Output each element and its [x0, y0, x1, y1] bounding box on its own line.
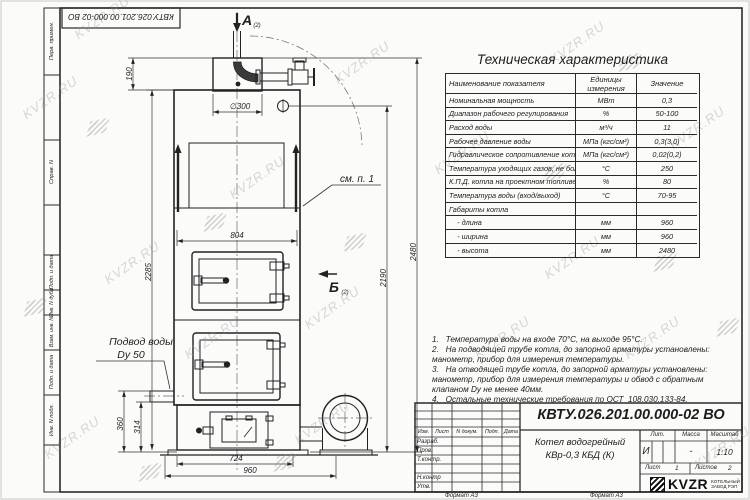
- tb-lit-value: И: [640, 446, 652, 457]
- tb-row-nkontr: Н.контр: [417, 475, 441, 481]
- table-cell: Габариты котла: [446, 203, 576, 217]
- table-cell: 0,02(0,2): [637, 148, 697, 162]
- table-cell: Диапазон рабочего регулирования: [446, 108, 576, 122]
- tb-row-utv: Утв.: [417, 484, 431, 490]
- tb-row-razrab: Разраб.: [417, 439, 439, 445]
- kvzr-logo-text: KVZR: [668, 476, 708, 492]
- kvzr-logo-sub2: ЗАВОД РЭП: [711, 484, 740, 489]
- note-line: 1. Температура воды на входе 70°С, на вы…: [432, 335, 734, 345]
- table-cell: 960: [637, 216, 697, 230]
- table-cell: [576, 203, 637, 217]
- table-title: Техническая характеристика: [445, 52, 700, 67]
- note-line: клапаном Dу не менее 40мм.: [432, 385, 734, 395]
- note-line: 2. На подводящей трубе котла, до запорно…: [432, 345, 734, 355]
- table-cell: Температура уходящих газов, не более: [446, 162, 576, 176]
- view-b-ref: (2): [341, 290, 348, 296]
- tb-col-data: Дата: [502, 429, 520, 435]
- table-cell: 80: [637, 176, 697, 190]
- water-supply-line1: Подвод воды: [109, 336, 173, 348]
- kvzr-logo-icon: [650, 477, 665, 492]
- table-cell: МВт: [576, 94, 637, 108]
- note-line: 3. На отводящей трубе котла, до запорной…: [432, 365, 734, 375]
- dim-314: 314: [133, 420, 142, 434]
- title-block-doc-number: КВТУ.026.201.00.000-02 ВО: [520, 407, 742, 423]
- tb-col-ndokum: N докум.: [452, 429, 482, 435]
- tb-mass-value: -: [675, 446, 707, 456]
- tb-mass-label: Масса: [675, 432, 707, 438]
- tb-sheet-value: 1: [675, 465, 679, 472]
- dim-dia300: ∅300: [230, 102, 251, 111]
- dim-2285: 2285: [144, 263, 153, 282]
- table-cell: мм: [576, 216, 637, 230]
- dim-2190: 2190: [379, 269, 388, 288]
- table-cell: - длина: [446, 216, 576, 230]
- tb-row-prov: Пров.: [417, 448, 433, 454]
- engineering-drawing-page: { "watermark": { "text": "KVZR.RU" }, "f…: [0, 0, 750, 500]
- table-cell: м³/ч: [576, 121, 637, 135]
- table-cell: 960: [637, 230, 697, 244]
- product-name-line1: Котел водогрейный: [520, 437, 640, 448]
- table-cell: Температура воды (вход/выход): [446, 189, 576, 203]
- tb-col-podp: Подп.: [482, 429, 502, 435]
- table-cell: мм: [576, 244, 637, 258]
- dim-724: 724: [229, 454, 243, 463]
- side-field-perv-primen: Перв. примен.: [49, 1, 55, 81]
- tb-row-tkontr: Т.контр.: [417, 457, 441, 463]
- dim-804: 804: [230, 231, 244, 240]
- table-cell: %: [576, 176, 637, 190]
- table-cell: °С: [576, 189, 637, 203]
- section-a-label: А: [241, 12, 252, 28]
- tb-scale-label: Масштаб: [707, 432, 742, 438]
- table-cell: К.П.Д. котла на проектном топливе: [446, 176, 576, 190]
- dim-960: 960: [243, 466, 257, 475]
- format-label-right: Формат А3: [590, 493, 623, 499]
- table-cell: 11: [637, 121, 697, 135]
- tb-sheet-label: Лист: [645, 465, 660, 471]
- table-cell: Гидравлическое сопротивление котла: [446, 148, 576, 162]
- product-name-line2: КВр-0,3 КБД (К): [520, 450, 640, 461]
- table-cell: МПа (кгс/см²): [576, 148, 637, 162]
- note-line: манометр, прибор для измерения температу…: [432, 355, 734, 365]
- technical-characteristics-table: Наименование показателя Единицы измерени…: [445, 73, 700, 258]
- note-line: манометр, прибор для измерения температу…: [432, 375, 734, 385]
- side-field-inv-podl: Инв. N подл.: [49, 390, 55, 450]
- note-line: 4. Остальные технические требования по О…: [432, 395, 734, 405]
- table-cell: %: [576, 108, 637, 122]
- table-header-value: Значение: [637, 74, 697, 94]
- table-cell: 0,3(3,0): [637, 135, 697, 149]
- water-supply-line2: Dy 50: [117, 349, 145, 361]
- kvzr-logo: KVZR КОТЕЛЬНЫЙ ЗАВОД РЭП: [650, 476, 740, 492]
- tb-lit-label: Лит.: [640, 432, 675, 438]
- table-cell: - высота: [446, 244, 576, 258]
- table-cell: 70-95: [637, 189, 697, 203]
- tb-scale-value: 1:10: [707, 447, 742, 457]
- format-label-left: Формат А3: [445, 493, 478, 499]
- section-a-ref: (2): [253, 23, 260, 29]
- dim-2480: 2480: [409, 243, 418, 262]
- table-header-name: Наименование показателя: [446, 74, 576, 94]
- table-cell: °С: [576, 162, 637, 176]
- tb-sheets-value: 2: [728, 465, 732, 472]
- tb-col-izm: Изм.: [415, 429, 432, 435]
- table-cell: [637, 203, 697, 217]
- table-cell: Рабочее давление воды: [446, 135, 576, 149]
- top-left-doc-stamp: КВТУ.026.201.00.000-02 ВО: [64, 12, 178, 22]
- see-note-label: см. п. 1: [340, 174, 374, 185]
- table-cell: - ширина: [446, 230, 576, 244]
- tb-col-list: Лист: [432, 429, 452, 435]
- table-cell: Номинальная мощность: [446, 94, 576, 108]
- table-cell: мм: [576, 230, 637, 244]
- table-cell: МПа (кгс/см²): [576, 135, 637, 149]
- dim-190: 190: [125, 67, 134, 81]
- boiler-outline: [150, 13, 378, 455]
- table-cell: 50-100: [637, 108, 697, 122]
- table-cell: 2480: [637, 244, 697, 258]
- tb-sheets-label: Листов: [695, 465, 717, 471]
- table-cell: 250: [637, 162, 697, 176]
- table-cell: Расход воды: [446, 121, 576, 135]
- dim-360: 360: [116, 417, 125, 431]
- view-b-label: Б: [329, 279, 339, 295]
- table-header-units: Единицы измерения: [576, 74, 637, 94]
- table-cell: 0,3: [637, 94, 697, 108]
- side-field-sprav-n: Справ. N: [49, 142, 55, 202]
